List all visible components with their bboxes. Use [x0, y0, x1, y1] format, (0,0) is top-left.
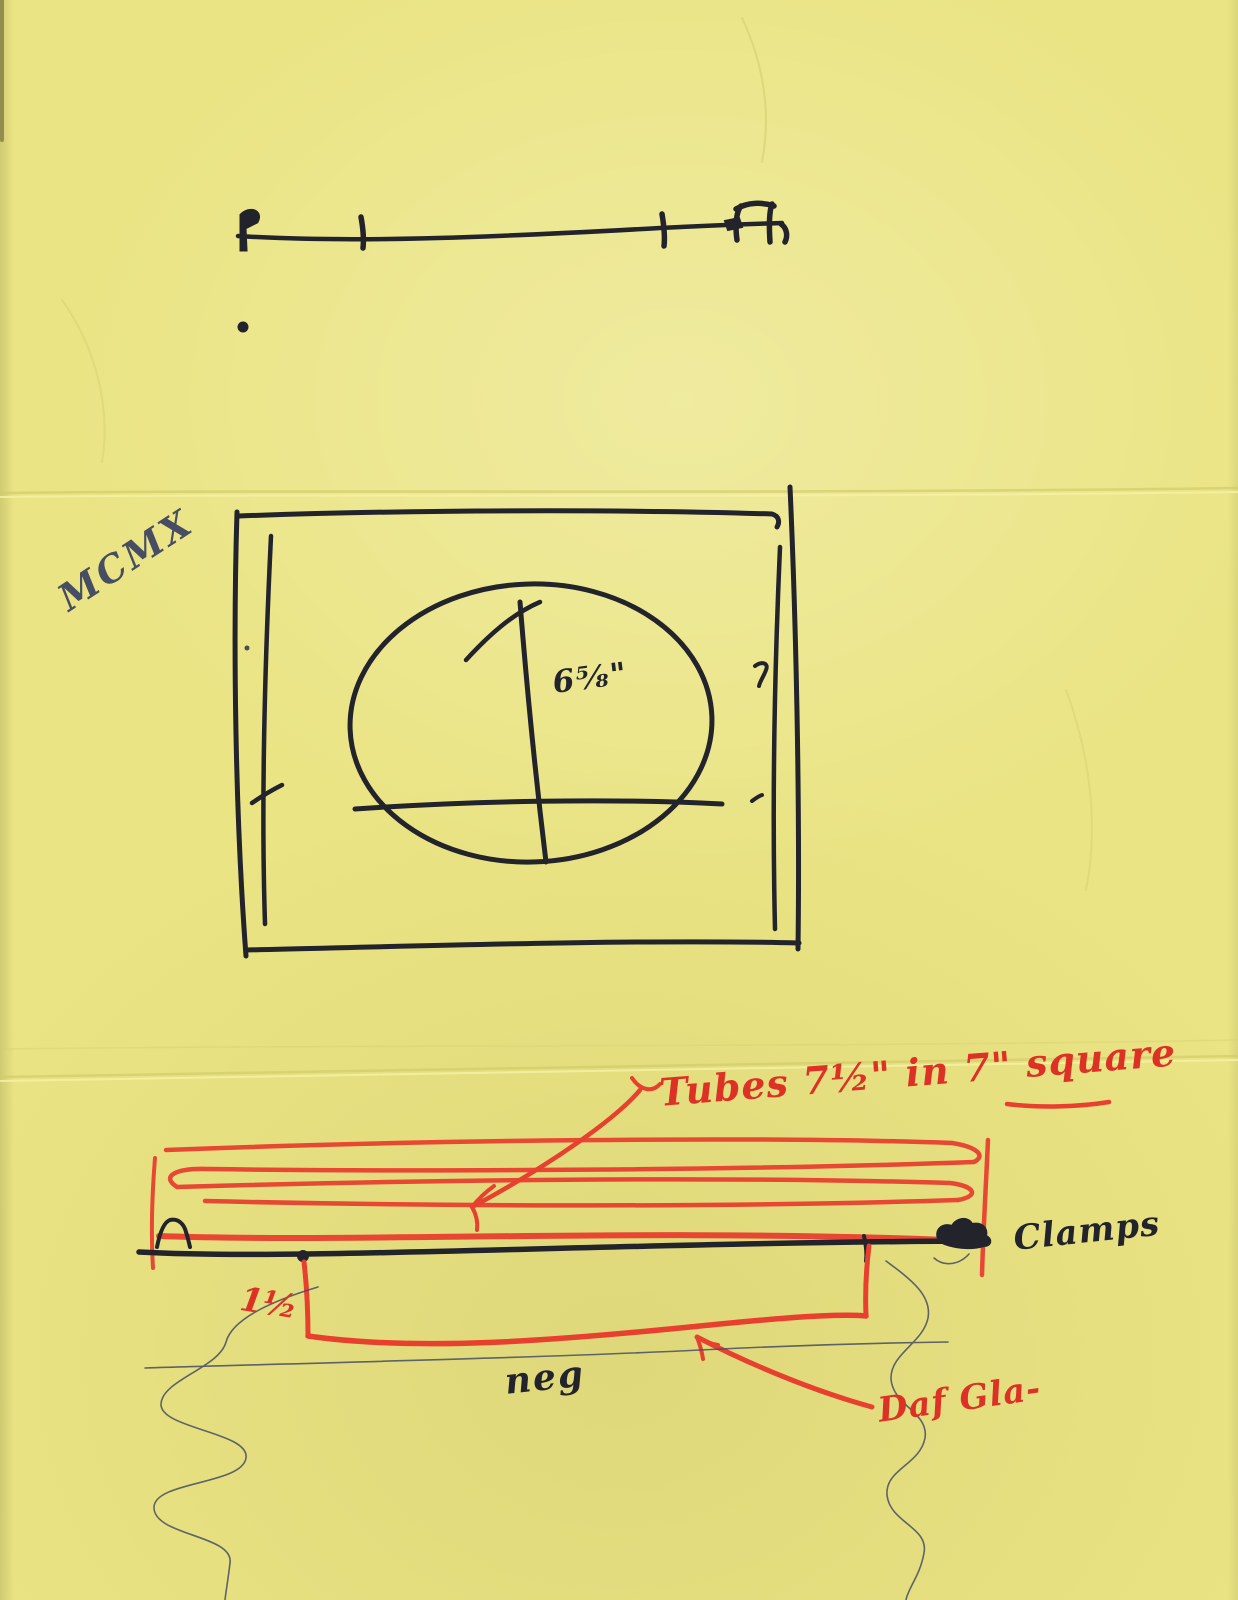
scanned-sketch-page: { "document": { "kind": "hand-drawn appa… — [0, 0, 1238, 1600]
base-left-clamp — [157, 1220, 190, 1247]
pencil-left-squiggle — [154, 1287, 318, 1600]
wrinkle-mark — [1066, 690, 1092, 890]
coil-line-3 — [177, 1179, 972, 1200]
glass-sketch — [304, 1246, 869, 1344]
tubes-arrow-tail — [632, 1078, 660, 1089]
plate-top-edge — [239, 511, 779, 527]
inner-right-mark — [755, 663, 767, 686]
plate-sketch — [235, 487, 799, 956]
coil-line-4 — [205, 1200, 958, 1205]
sketch-drawing — [0, 0, 1238, 1600]
coil-right-edge — [982, 1140, 988, 1275]
inner-right-dash — [752, 795, 762, 801]
pencil-dot — [245, 646, 250, 651]
square-underline — [1007, 1102, 1109, 1106]
coil-bottom-line — [159, 1235, 946, 1240]
oval-vertical-axis — [520, 602, 546, 862]
top-bar-sketch — [238, 203, 787, 332]
glass-right-rise — [866, 1246, 869, 1316]
glass-bottom — [308, 1315, 866, 1343]
pencil-right-squiggle — [886, 1261, 929, 1600]
bar-left-clamp — [241, 210, 259, 250]
plate-inner-left-line — [263, 536, 271, 924]
crease-upper-shadow — [0, 488, 1238, 493]
bar-tick-right — [662, 214, 664, 246]
base-line — [139, 1241, 988, 1254]
plate-left-edge — [235, 512, 246, 956]
pencil-clamp-hook — [934, 1254, 969, 1264]
wrinkle-mark — [62, 300, 105, 462]
wrinkle-mark — [742, 18, 766, 162]
ink-dot — [238, 322, 249, 333]
glass-leader — [697, 1337, 872, 1407]
bar-line — [238, 223, 782, 239]
plate-bottom-edge — [246, 942, 799, 950]
coil-line-1 — [166, 1139, 979, 1162]
oval-dimension-label: 6⅝" — [551, 659, 630, 699]
plate-right-edge — [790, 487, 799, 949]
oval-axis-overshoot — [466, 602, 540, 660]
plate-inner-right-line — [774, 547, 780, 929]
inner-left-tick — [252, 785, 282, 803]
glass-left-drop — [304, 1262, 308, 1336]
negative-label: neg — [503, 1356, 587, 1400]
bar-tick-left — [361, 217, 363, 248]
tubes-arrowhead — [472, 1186, 494, 1230]
tubes-arrow — [472, 1090, 640, 1207]
gap-dimension-label: 1½ — [238, 1282, 300, 1324]
